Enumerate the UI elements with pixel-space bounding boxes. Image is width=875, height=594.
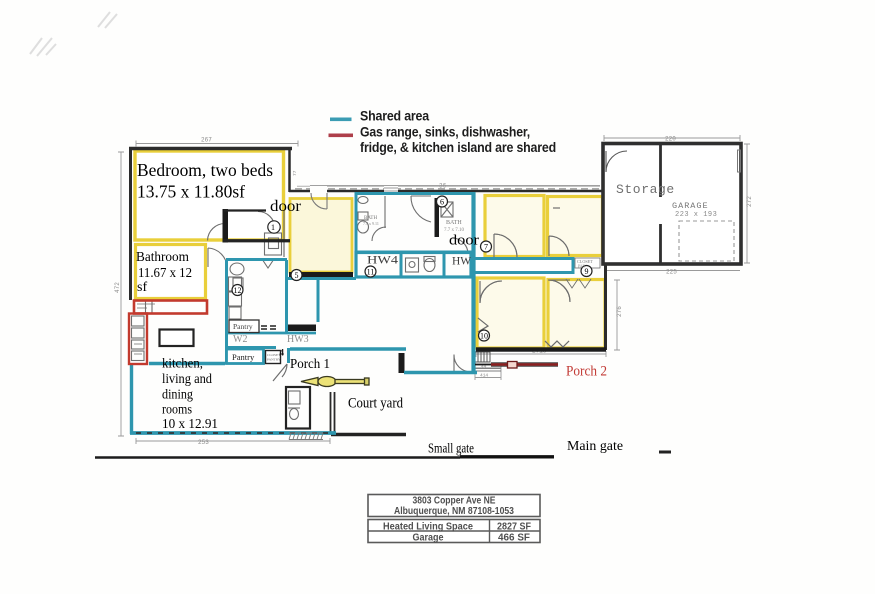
svg-text:253: 253 — [198, 439, 209, 446]
svg-text:1: 1 — [271, 223, 275, 232]
svg-text:fridge, & kitchen island are s: fridge, & kitchen island are shared — [360, 140, 556, 155]
svg-text:CLOSET: CLOSET — [577, 259, 593, 264]
svg-text:living and: living and — [162, 372, 212, 387]
svg-text:HW4: HW4 — [367, 255, 398, 267]
svg-text:5: 5 — [295, 271, 299, 280]
svg-text:220: 220 — [665, 136, 676, 143]
svg-text:2827 SF: 2827 SF — [497, 522, 531, 533]
svg-text:272: 272 — [746, 196, 753, 207]
svg-text:6: 6 — [440, 198, 444, 207]
svg-text:PAN: PAN — [578, 265, 586, 269]
svg-text:PANTRY: PANTRY — [267, 358, 281, 362]
svg-text:Shared area: Shared area — [360, 109, 430, 124]
svg-text:223 x 193: 223 x 193 — [675, 211, 717, 219]
svg-text:276: 276 — [616, 306, 623, 317]
svg-text:Court yard: Court yard — [348, 396, 404, 412]
svg-text:10: 10 — [480, 332, 488, 341]
svg-text:11: 11 — [367, 268, 375, 277]
svg-text:7: 7 — [484, 243, 488, 252]
svg-text:77: 77 — [292, 170, 298, 176]
svg-text:door: door — [270, 198, 302, 215]
svg-text:HW3: HW3 — [287, 334, 309, 345]
svg-text:3803 Copper Ave NE: 3803 Copper Ave NE — [413, 496, 496, 507]
svg-text:door: door — [449, 233, 479, 249]
svg-text:4: 4 — [280, 348, 285, 358]
svg-text:GARAGE: GARAGE — [672, 201, 709, 211]
svg-text:Storage: Storage — [616, 182, 675, 197]
svg-text:Pantry: Pantry — [233, 322, 253, 331]
svg-text:11.67 x 12: 11.67 x 12 — [138, 266, 192, 281]
svg-text:472: 472 — [114, 282, 121, 293]
svg-text:dining: dining — [162, 388, 193, 403]
svg-text:Gas range, sinks, dishwasher,: Gas range, sinks, dishwasher, — [360, 125, 530, 140]
svg-text:466 SF: 466 SF — [498, 533, 530, 544]
svg-text:Garage: Garage — [413, 533, 445, 544]
svg-text:13.75 x 11.80sf: 13.75 x 11.80sf — [137, 182, 245, 202]
svg-text:Porch 1: Porch 1 — [290, 357, 330, 372]
svg-text:BATH: BATH — [446, 220, 462, 226]
svg-text:HW: HW — [452, 256, 471, 268]
svg-text:7.7 x 9.11: 7.7 x 9.11 — [363, 221, 379, 226]
svg-text:Small gate: Small gate — [428, 441, 474, 456]
svg-text:Bedroom, two beds: Bedroom, two beds — [137, 160, 273, 180]
svg-text:Heated Living Space: Heated Living Space — [383, 522, 474, 533]
svg-text:Bathroom: Bathroom — [136, 250, 189, 265]
svg-text:rooms: rooms — [162, 403, 192, 418]
svg-text:414: 414 — [480, 373, 488, 379]
svg-text:225: 225 — [666, 269, 677, 276]
svg-text:sf: sf — [137, 280, 147, 295]
svg-text:W2: W2 — [233, 334, 247, 345]
svg-text:10 x 12.91: 10 x 12.91 — [162, 417, 218, 432]
svg-text:12: 12 — [234, 286, 242, 295]
svg-text:Main gate: Main gate — [567, 439, 623, 454]
svg-text:267: 267 — [201, 137, 212, 144]
svg-text:kitchen,: kitchen, — [162, 357, 203, 372]
svg-text:Pantry: Pantry — [232, 352, 255, 362]
svg-text:Albuquerque, NM 87108-1053: Albuquerque, NM 87108-1053 — [394, 506, 514, 517]
svg-text:Porch 2: Porch 2 — [566, 364, 607, 380]
